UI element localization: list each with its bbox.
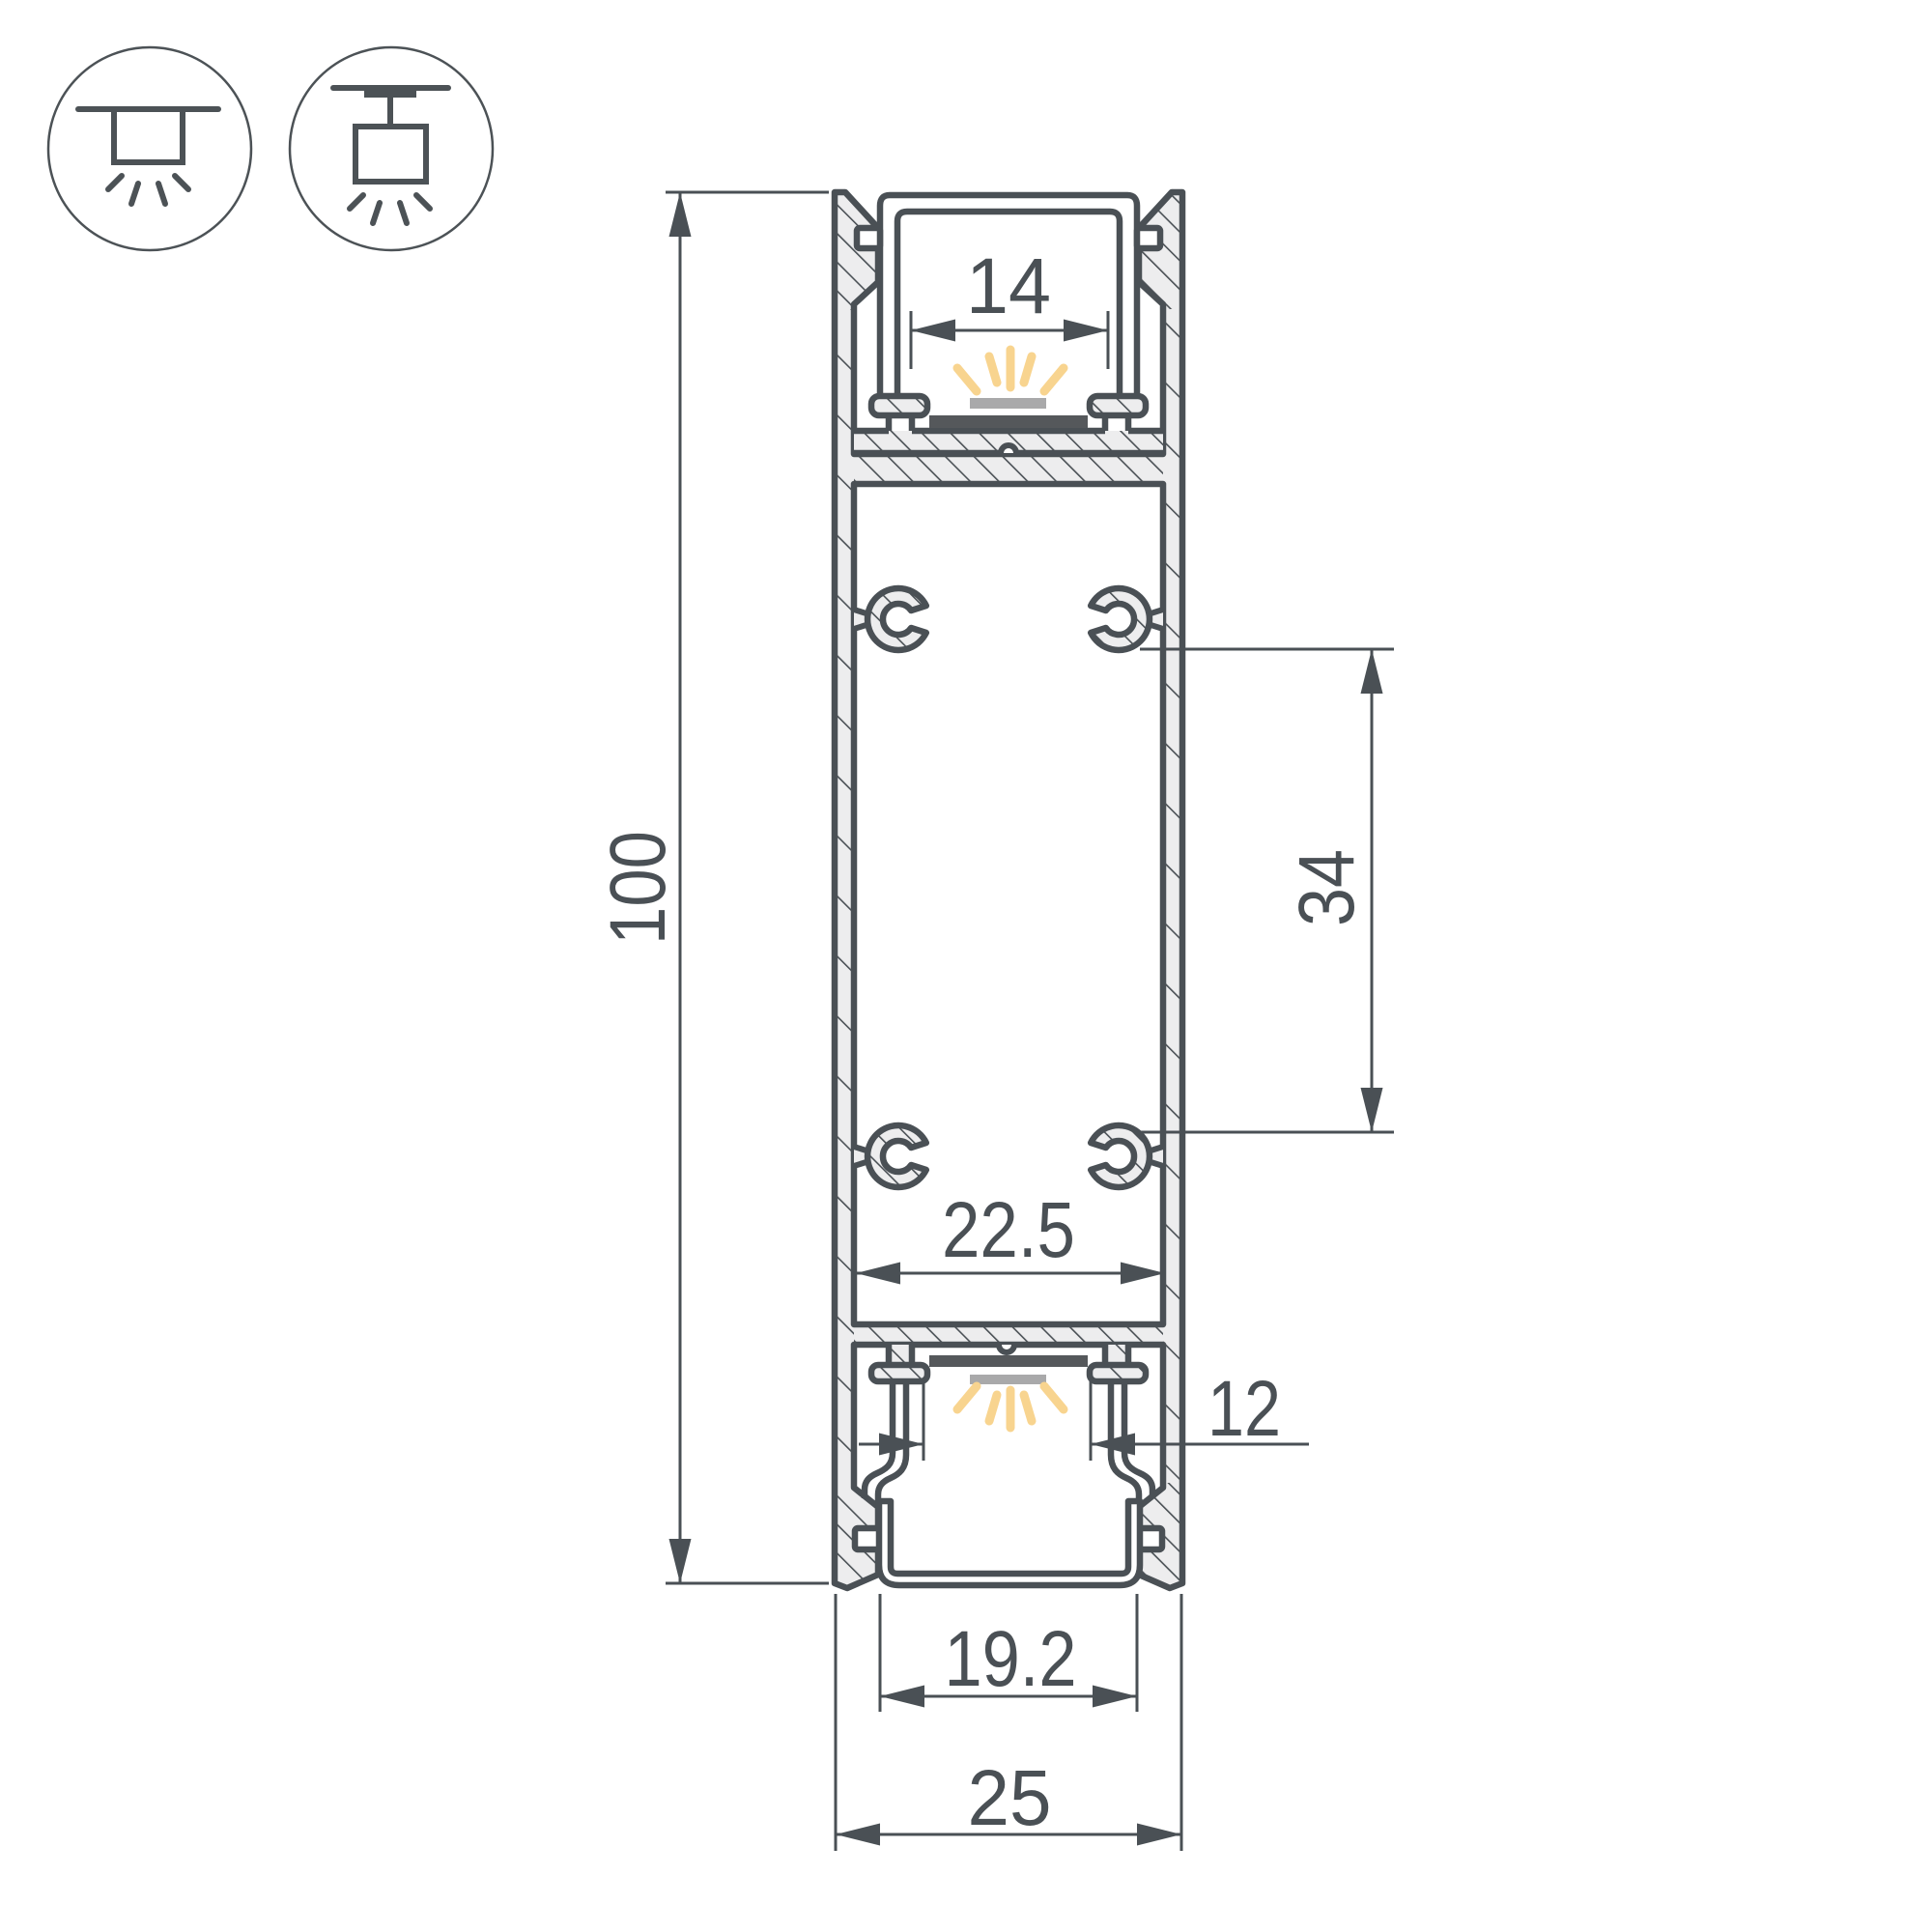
svg-text:19.2: 19.2 bbox=[945, 1615, 1077, 1703]
svg-text:34: 34 bbox=[1283, 849, 1371, 926]
svg-text:22.5: 22.5 bbox=[942, 1186, 1075, 1274]
svg-text:25: 25 bbox=[968, 1754, 1052, 1842]
svg-text:12: 12 bbox=[1207, 1365, 1281, 1453]
svg-text:100: 100 bbox=[594, 831, 682, 945]
svg-text:14: 14 bbox=[966, 242, 1051, 330]
